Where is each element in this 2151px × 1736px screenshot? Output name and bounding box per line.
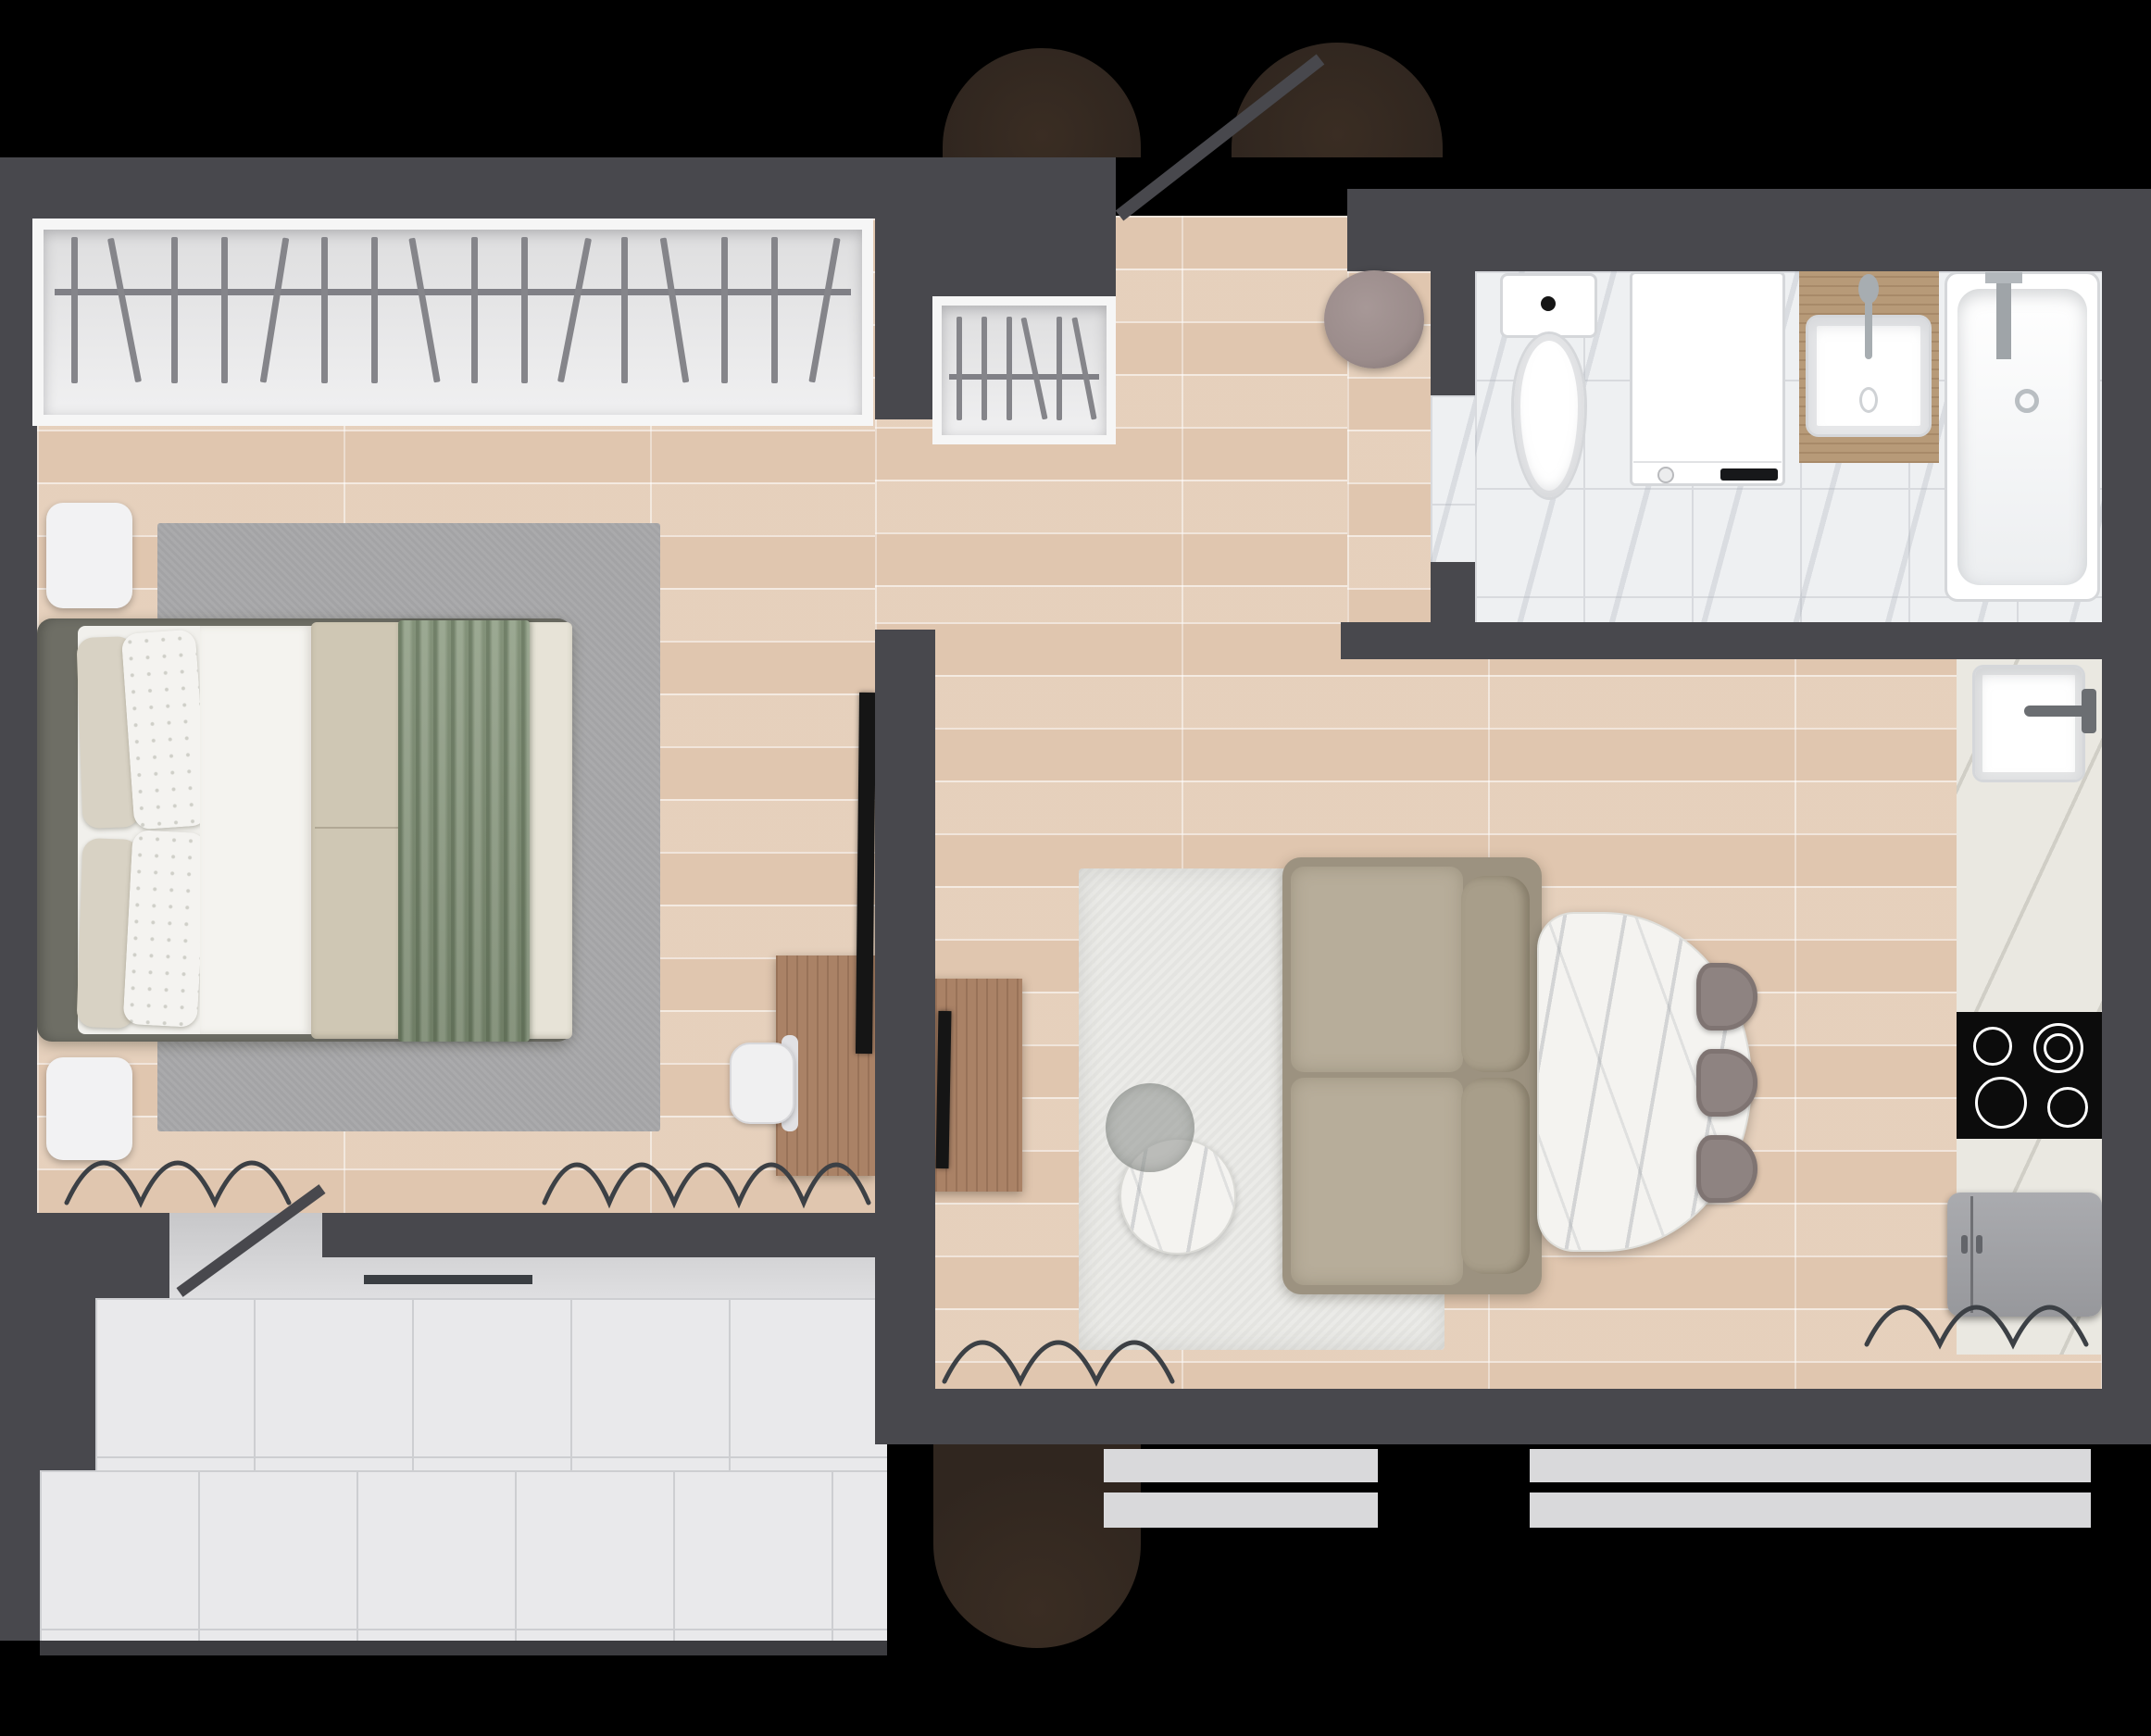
wall <box>1347 189 2151 271</box>
nightstand <box>46 503 132 608</box>
nightstand <box>46 1057 132 1160</box>
bed-sheet <box>200 626 311 1034</box>
clothes-hanger-icon <box>521 237 528 383</box>
washing-machine-knob <box>1657 467 1674 483</box>
closet-rail <box>949 374 1099 380</box>
clothes-hanger-icon <box>557 238 592 382</box>
kitchen-faucet-base <box>2082 689 2096 733</box>
kitchen-faucet-icon <box>2024 706 2089 717</box>
wall <box>322 1213 891 1257</box>
clothes-hanger-icon <box>1020 318 1047 420</box>
pillow-star-pattern <box>121 629 209 830</box>
floor-plan <box>0 0 2151 1736</box>
clothes-hanger-icon <box>621 237 628 383</box>
cooktop-burner-inner-ring <box>2044 1033 2073 1063</box>
entry-pouf <box>1324 270 1424 368</box>
bedroom-wardrobe <box>32 219 873 426</box>
bathroom-wall <box>1431 562 1475 622</box>
partition-wall <box>875 219 935 419</box>
clothes-hanger-icon <box>71 237 78 383</box>
wall <box>891 1389 2151 1444</box>
pillow-star-pattern <box>123 830 207 1028</box>
cooktop-burner <box>2047 1087 2088 1128</box>
sofa-back-cushion <box>1461 1078 1530 1274</box>
cooktop-burner <box>1975 1077 2027 1129</box>
window-pane <box>1104 1492 1378 1528</box>
bathroom-faucet-stem <box>1865 300 1872 359</box>
clothes-hanger-icon <box>171 237 178 383</box>
sofa-back-cushion <box>1461 876 1530 1072</box>
clothes-hanger-icon <box>771 237 778 383</box>
clothes-hanger-icon <box>408 238 440 383</box>
clothes-hanger-icon <box>808 238 840 383</box>
clothes-hanger-icon <box>471 237 478 383</box>
kitchen-sink <box>1972 665 2085 782</box>
balcony-wall <box>0 1298 95 1470</box>
wall <box>0 1213 169 1298</box>
wall <box>2102 189 2151 1444</box>
bathroom-wall <box>1431 271 1475 395</box>
clothes-hanger-icon <box>1057 317 1062 420</box>
terrace-tile-floor <box>95 1298 887 1470</box>
refrigerator-handle <box>1961 1235 1968 1254</box>
refrigerator-handle <box>1976 1235 1982 1254</box>
bathroom-wall <box>1341 622 2151 659</box>
window-pane <box>1530 1492 2091 1528</box>
wall <box>0 157 932 219</box>
sofa-seat-cushion <box>1291 867 1463 1072</box>
window <box>1104 1449 1378 1528</box>
window-pane <box>1530 1449 2091 1482</box>
cooktop-burner <box>1973 1027 2012 1066</box>
toilet-flush-button <box>1541 296 1556 311</box>
bathroom-doorway-floor <box>1431 395 1475 562</box>
wall <box>932 157 1116 296</box>
clothes-hanger-icon <box>721 237 728 383</box>
bathtub-faucet-icon <box>1996 274 2011 359</box>
window <box>1530 1449 2091 1528</box>
clothes-hanger-icon <box>1007 317 1012 420</box>
coffee-table-glass <box>1106 1083 1194 1172</box>
clothes-hanger-icon <box>221 237 228 383</box>
green-blanket <box>398 620 530 1042</box>
living-room-tv <box>936 1011 952 1168</box>
refrigerator-door-split <box>1970 1196 1973 1313</box>
clothes-hanger-icon <box>957 317 962 420</box>
window-pane <box>1104 1449 1378 1482</box>
clothes-hanger-icon <box>371 237 378 383</box>
clothes-hanger-icon <box>107 238 142 382</box>
entry-closet <box>932 296 1116 444</box>
terrace-edge <box>40 1641 887 1655</box>
bathtub-drain-icon <box>2015 389 2039 413</box>
partition-wall <box>875 630 935 1444</box>
wall <box>0 157 37 1213</box>
tree-icon <box>1232 43 1443 157</box>
sofa-seat-cushion <box>1291 1078 1463 1285</box>
clothes-hanger-icon <box>660 237 690 382</box>
tree-icon <box>943 48 1141 157</box>
clothes-hanger-icon <box>1071 317 1096 419</box>
washing-machine-lid-line <box>1633 461 1782 463</box>
office-chair-seat <box>730 1043 794 1124</box>
terrace-tile-floor <box>40 1470 887 1641</box>
sink-drain-icon <box>1859 387 1878 413</box>
clothes-hanger-icon <box>321 237 328 383</box>
bathtub-faucet-bar <box>1985 272 2022 283</box>
bathtub-basin <box>1957 289 2087 585</box>
washing-machine-control-panel <box>1720 468 1778 481</box>
clothes-hanger-icon <box>982 317 987 420</box>
balcony-wall <box>0 1470 40 1641</box>
washing-machine <box>1630 271 1785 486</box>
clothes-hanger-icon <box>260 237 290 382</box>
